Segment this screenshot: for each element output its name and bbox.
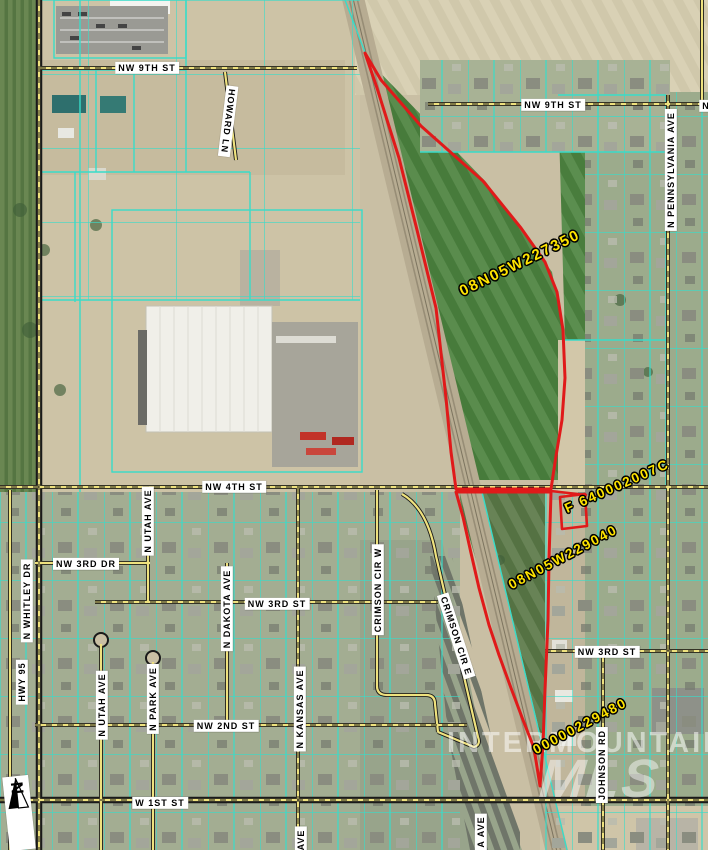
street-label: N DAKOTA AVE [221,567,233,652]
street-label: NW 2ND ST [194,720,259,732]
street-label: NW 3RD ST [575,646,640,658]
street-label: JOHNSON RD [596,727,608,803]
street-label: W 1ST ST [132,797,188,809]
street-label: NW 3RD DR [53,558,119,570]
street-label: NW 3RD ST [245,598,310,610]
street-label: N [699,100,708,112]
aerial-parcel-map[interactable]: INTERMOUNTAIN MLS NW 9TH ST NW 9TH ST N … [0,0,708,850]
north-arrow-label: N [5,774,28,802]
street-label: N PARK AVE [147,664,159,734]
highlight-parcel-outline [365,53,587,786]
street-label: CRIMSON CIR W [372,545,384,636]
street-label: NW 4TH ST [202,481,266,493]
street-label: AVE [295,827,307,850]
street-label: A AVE [475,813,487,850]
street-label: N KANSAS AVE [294,666,306,751]
street-label: N UTAH AVE [142,486,154,555]
street-label: N WHITLEY DR [21,560,33,643]
street-label: N UTAH AVE [96,670,108,739]
street-label: HWY 95 [16,659,28,704]
street-label: NW 9TH ST [115,62,179,74]
street-label: N PENNSYLVANIA AVE [665,109,677,231]
street-label: NW 9TH ST [521,99,585,111]
